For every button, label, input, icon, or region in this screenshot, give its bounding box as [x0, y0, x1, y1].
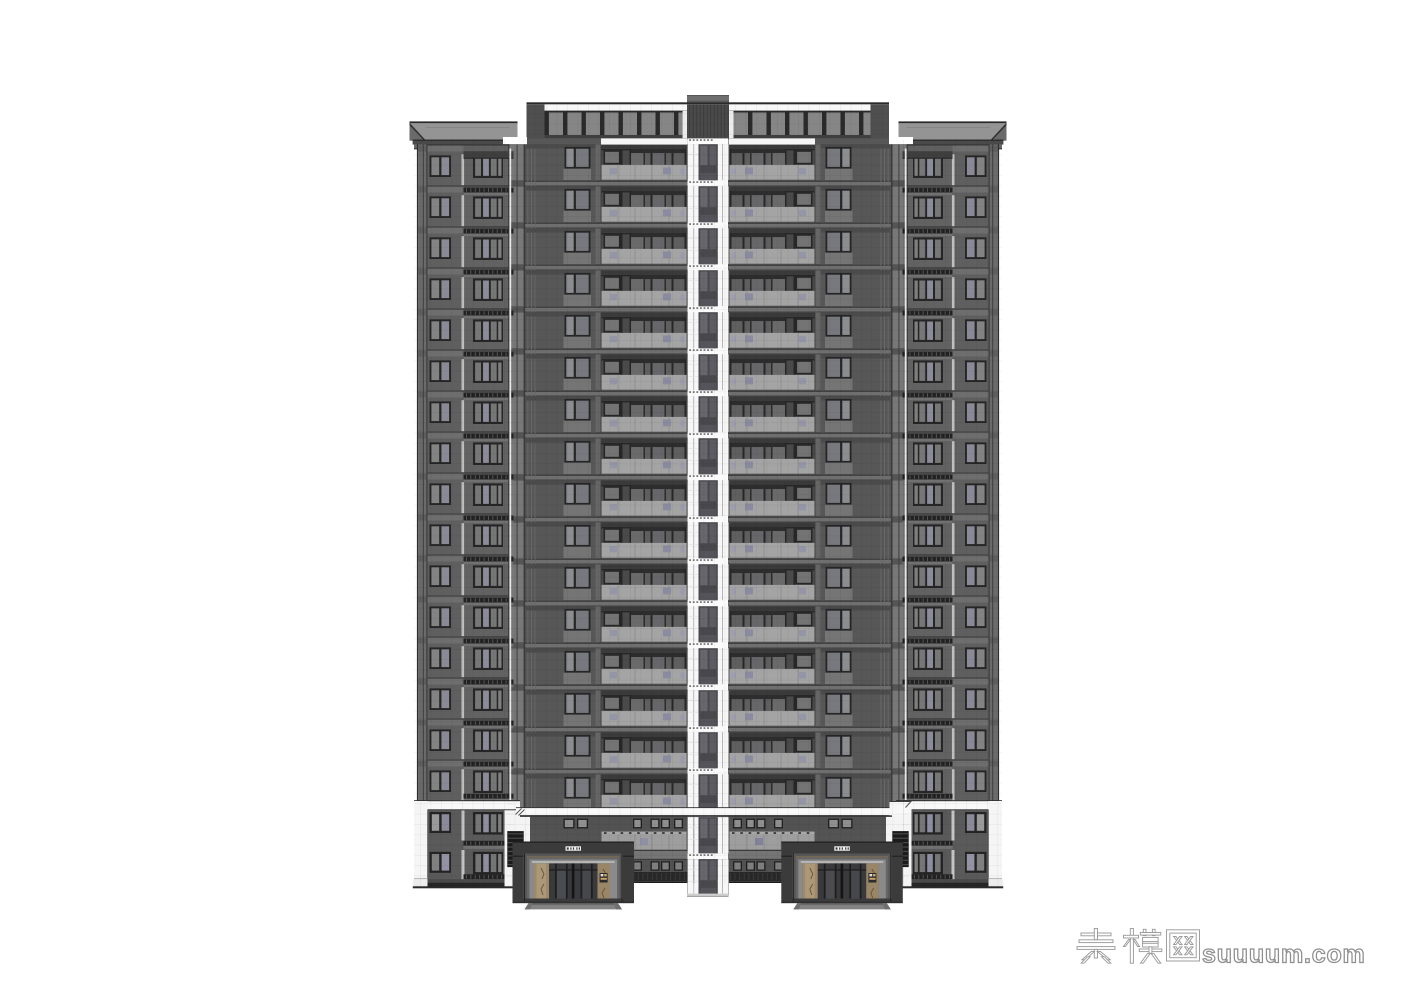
svg-text:suuuum.com: suuuum.com	[1202, 941, 1366, 969]
